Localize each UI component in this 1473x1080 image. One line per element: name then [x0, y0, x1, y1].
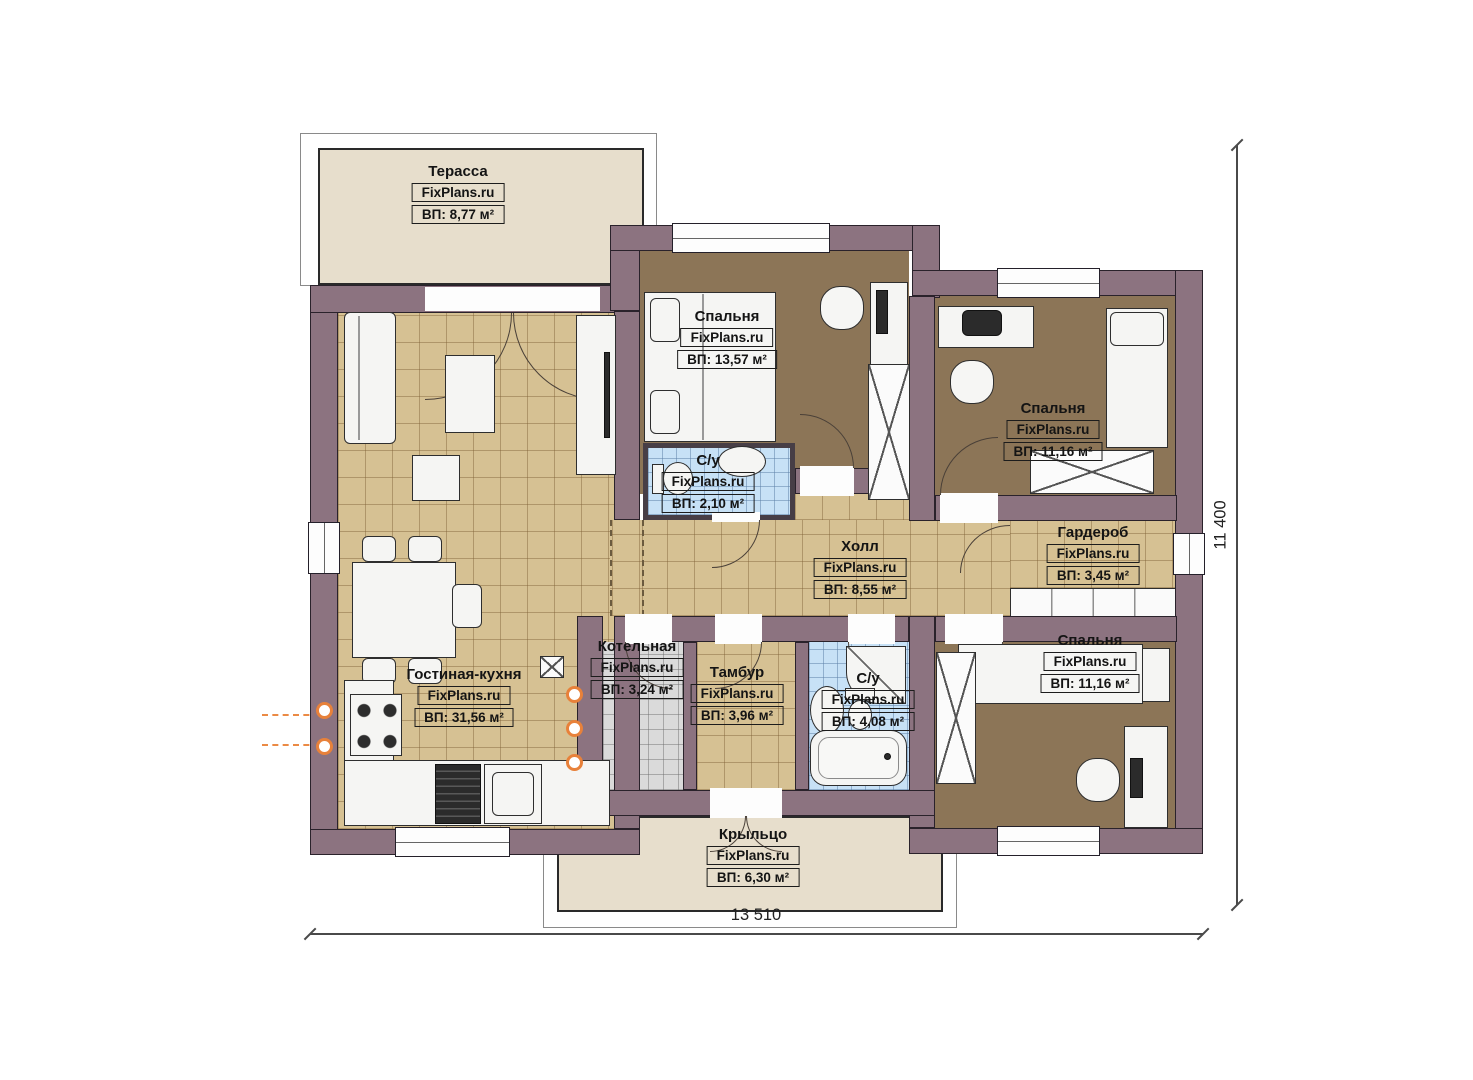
room-label-bedroom1: Спальня FixPlans.ru ВП: 13,57 м² [677, 308, 777, 369]
dining-table [352, 562, 456, 658]
watermark: FixPlans.ru [418, 686, 511, 705]
room-name: Крыльцо [719, 826, 787, 843]
room-name: Терасса [428, 163, 487, 180]
dimension-height-label: 11 400 [1212, 500, 1231, 549]
dimension-line-right [1236, 145, 1238, 905]
sofa [344, 312, 396, 444]
watermark: FixPlans.ru [814, 558, 907, 577]
office-chair [950, 360, 994, 404]
pillow [650, 298, 680, 342]
vent-symbol [540, 656, 564, 678]
vestibule-door-opening [715, 614, 762, 644]
tv-screen [604, 352, 610, 438]
room-label-wardrobe: Гардероб FixPlans.ru ВП: 3,45 м² [1047, 524, 1140, 585]
dining-chair [408, 536, 442, 562]
entry-door-opening [710, 788, 782, 818]
sofa-cushion-line [358, 316, 360, 440]
room-name: Холл [841, 538, 879, 555]
kitchen-sink-basin [492, 772, 534, 816]
wall [795, 642, 809, 790]
watermark: FixPlans.ru [591, 658, 684, 677]
room-name: Котельная [598, 638, 677, 655]
radiator [566, 720, 583, 737]
pillow [650, 390, 680, 434]
room-label-boiler: Котельная FixPlans.ru ВП: 3,24 м² [591, 638, 684, 699]
wardrobe-cabinet [868, 364, 910, 500]
watermark: FixPlans.ru [412, 183, 505, 202]
armchair [412, 455, 460, 501]
stove [350, 694, 402, 756]
dishwasher [435, 764, 481, 824]
watermark: FixPlans.ru [822, 690, 915, 709]
dining-chair [362, 536, 396, 562]
room-label-bathroom1: С/у FixPlans.ru ВП: 2,10 м² [662, 452, 755, 513]
room-name: С/у [856, 670, 879, 687]
window [672, 223, 830, 253]
dimension-line-bottom [310, 933, 1203, 935]
room-label-bedroom3: Спальня FixPlans.ru ВП: 11,16 м² [1041, 632, 1140, 693]
printer [962, 310, 1002, 336]
window [1173, 533, 1205, 575]
room-area: ВП: 31,56 м² [414, 708, 514, 727]
wall [909, 296, 935, 521]
living-hall-passage [610, 520, 644, 616]
watermark: FixPlans.ru [662, 472, 755, 491]
room-area: ВП: 4,08 м² [822, 712, 914, 731]
watermark: FixPlans.ru [707, 846, 800, 865]
room-name: Гардероб [1058, 524, 1129, 541]
room-name: Спальня [1021, 400, 1086, 417]
room-label-porch: Крыльцо FixPlans.ru ВП: 6,30 м² [707, 826, 800, 887]
watermark: FixPlans.ru [691, 684, 784, 703]
bedroom2-door-opening [940, 493, 998, 523]
room-label-bathroom2: С/у FixPlans.ru ВП: 4,08 м² [822, 670, 915, 731]
room-name: Тамбур [710, 664, 764, 681]
radiator [566, 686, 583, 703]
nightstand [1142, 648, 1170, 702]
room-label-vestibule: Тамбур FixPlans.ru ВП: 3,96 м² [691, 664, 784, 725]
room-area: ВП: 13,57 м² [677, 350, 777, 369]
watermark: FixPlans.ru [1047, 544, 1140, 563]
tv-unit [576, 315, 616, 475]
room-name: Спальня [1058, 632, 1123, 649]
coffee-table [445, 355, 495, 433]
room-area: ВП: 8,55 м² [814, 580, 906, 599]
room-label-bedroom2: Спальня FixPlans.ru ВП: 11,16 м² [1004, 400, 1103, 461]
room-name: Спальня [695, 308, 760, 325]
monitor [876, 290, 888, 334]
office-chair [1076, 758, 1120, 802]
watermark: FixPlans.ru [1044, 652, 1137, 671]
room-name: С/у [696, 452, 719, 469]
window [308, 522, 340, 574]
room-area: ВП: 11,16 м² [1041, 674, 1140, 693]
room-label-terrace: Терасса FixPlans.ru ВП: 8,77 м² [412, 163, 505, 224]
wardrobe-cabinet [936, 652, 976, 784]
room-label-living-kitchen: Гостиная-кухня FixPlans.ru ВП: 31,56 м² [407, 666, 522, 727]
window [997, 268, 1100, 298]
room-area: ВП: 2,10 м² [662, 494, 754, 513]
room-area: ВП: 3,24 м² [591, 680, 683, 699]
dimension-width-label: 13 510 [731, 906, 781, 925]
radiator [316, 702, 333, 719]
room-area: ВП: 8,77 м² [412, 205, 504, 224]
pillow [1110, 312, 1164, 346]
room-area: ВП: 6,30 м² [707, 868, 799, 887]
floor-plan: Терасса FixPlans.ru ВП: 8,77 м² Спальня … [0, 0, 1473, 1080]
window [997, 826, 1100, 856]
watermark: FixPlans.ru [1007, 420, 1100, 439]
terrace-door-opening [425, 287, 600, 311]
window [395, 827, 510, 857]
wall [614, 311, 640, 520]
bathtub-drain [884, 753, 891, 760]
radiator [566, 754, 583, 771]
room-area: ВП: 3,45 м² [1047, 566, 1139, 585]
monitor [1130, 758, 1143, 798]
room-name: Гостиная-кухня [407, 666, 522, 683]
office-chair [820, 286, 864, 330]
bedroom1-door-opening [800, 466, 854, 496]
radiator [316, 738, 333, 755]
room-area: ВП: 11,16 м² [1004, 442, 1103, 461]
room-area: ВП: 3,96 м² [691, 706, 783, 725]
dining-chair [452, 584, 482, 628]
bedroom3-door-opening [945, 614, 1003, 644]
room-label-hall: Холл FixPlans.ru ВП: 8,55 м² [814, 538, 907, 599]
watermark: FixPlans.ru [681, 328, 774, 347]
bathroom2-door-opening [848, 614, 895, 644]
